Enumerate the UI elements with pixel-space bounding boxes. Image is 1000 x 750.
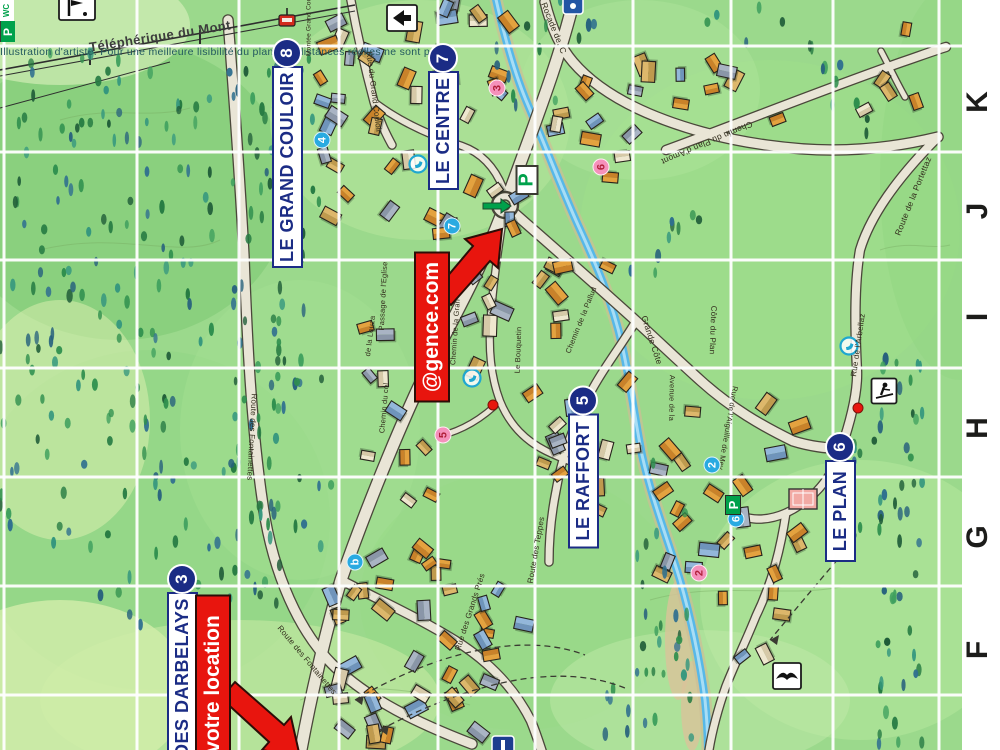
- cyan-marker: 4: [314, 132, 331, 149]
- street-label: Route des Fontainettes: [276, 624, 339, 697]
- pink-marker: 5: [435, 427, 452, 444]
- district-name: LE CENTRE: [428, 71, 459, 190]
- street-label: Le Bouquetin: [513, 327, 524, 374]
- district-label: LE RAFFORT 5: [566, 386, 600, 549]
- ad-banner: votre location: [195, 595, 231, 750]
- street-label: Montée Grand Couloir: [306, 0, 313, 56]
- street-label: Route de la Portettaz: [893, 155, 934, 237]
- grid-row-letter: I: [961, 313, 995, 321]
- street-label: Route des Teppes: [526, 516, 547, 584]
- district-label: DES DARBELAYS 3: [165, 573, 199, 750]
- poi-dot: [488, 400, 499, 411]
- cyan-marker: 7: [444, 218, 461, 235]
- grid-row-letter: K: [961, 91, 995, 113]
- street-label: Passage de l'Eglise: [377, 261, 390, 330]
- map-overlays: Téléphérique du MontMontée Grand Couloir…: [0, 0, 1000, 750]
- wc-icon: WC: [0, 0, 14, 21]
- district-name: LE GRAND COULOIR: [272, 66, 303, 268]
- street-label: Chemin de la Gran: [448, 299, 462, 366]
- district-number-badge: 8: [272, 38, 302, 68]
- district-label: LE GRAND COULOIR 8: [270, 40, 304, 268]
- district-name: LE RAFFORT: [568, 414, 599, 549]
- district-number-badge: 6: [825, 432, 855, 462]
- street-label: Chemin du col: [377, 382, 390, 433]
- pink-marker: 2: [691, 565, 708, 582]
- district-number-badge: 3: [167, 564, 197, 594]
- district-number-badge: 7: [428, 43, 458, 73]
- street-label: Route des Fontainettes: [245, 393, 259, 480]
- cyan-marker: b: [347, 554, 364, 571]
- grid-row-letter: G: [961, 525, 995, 548]
- resort-map: Téléphérique du MontMontée Grand Couloir…: [0, 0, 1000, 750]
- pink-marker: 3: [489, 80, 506, 97]
- ad-banner: @gence.com: [414, 252, 450, 403]
- poi-dot: [853, 403, 864, 414]
- grid-row-letter: H: [961, 417, 995, 439]
- parking-icon: P: [725, 495, 741, 515]
- pink-marker: 6: [593, 159, 610, 176]
- cyan-marker: 2: [704, 457, 721, 474]
- street-label: Grande Côte: [639, 314, 664, 365]
- parking-icon: P: [516, 165, 539, 195]
- street-label: Avenue de la: [667, 375, 677, 421]
- parking-letter: P: [516, 173, 539, 186]
- street-label: Rue du Grand Couloir: [365, 51, 384, 133]
- street-label: Rue des Grands Prés: [453, 572, 487, 652]
- street-label: Côte du Plan: [708, 306, 719, 355]
- grid-row-letter: J: [961, 203, 995, 220]
- street-label: Chemin de la Pallud: [564, 285, 599, 354]
- street-label: de la Louza: [363, 315, 377, 357]
- street-label: Rue de l'Arbellaz: [849, 313, 867, 377]
- district-label: LE PLAN 6: [823, 432, 857, 562]
- street-label: Rocade de. C: [539, 1, 569, 55]
- street-label: Rue de l'Aiguille de Mey: [716, 385, 740, 470]
- district-label: LE CENTRE 7: [426, 44, 460, 190]
- grid-row-letter: F: [961, 641, 995, 659]
- parking-icon: P: [0, 21, 15, 42]
- district-name: LE PLAN: [825, 460, 856, 562]
- district-number-badge: 5: [568, 386, 598, 416]
- district-name: DES DARBELAYS: [167, 592, 198, 750]
- street-label: Chemin du Plan d'Amont: [660, 119, 754, 167]
- parking-letter: P: [726, 501, 741, 510]
